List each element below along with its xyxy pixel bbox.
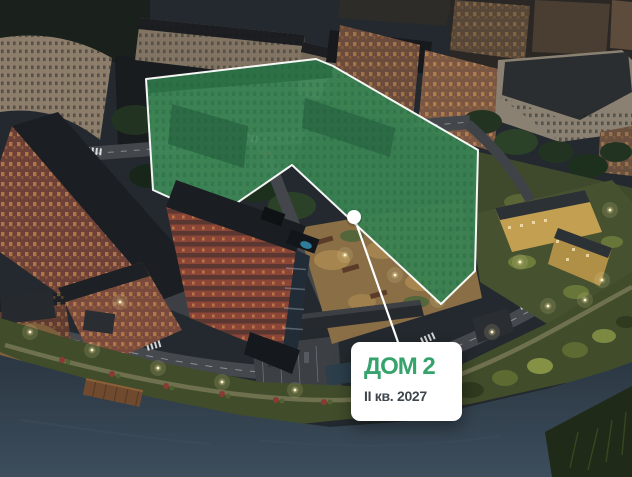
building-name-label: ДОМ 2	[364, 355, 452, 379]
location-marker-dot[interactable]	[347, 210, 361, 224]
render-scene	[0, 0, 632, 477]
completion-date-label: II кв. 2027	[364, 388, 452, 404]
aerial-render: ДОМ 2 II кв. 2027	[0, 0, 632, 477]
building-info-card[interactable]: ДОМ 2 II кв. 2027	[351, 342, 462, 421]
